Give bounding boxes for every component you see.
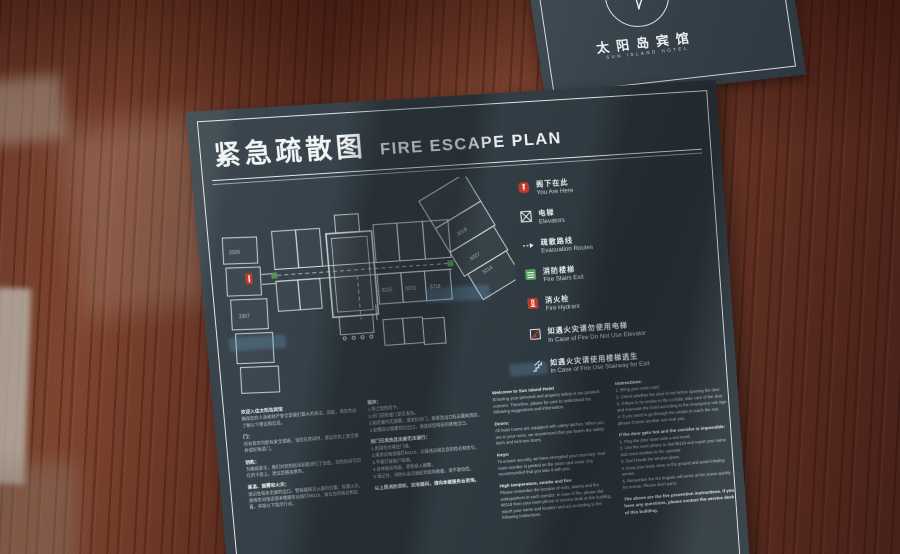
legend-label-en: Fire Stairs Exit [543,274,584,285]
legend-item-stairway-exit: 如遇火灾请使用楼梯逃生 In Case of Fire Use Stairway… [532,346,718,378]
room-label: 3216 [405,286,417,293]
column-footer: The above are the fire prevention instru… [624,487,736,516]
legend: 阁下在此 You Are Here 电梯 Elevators [517,161,718,388]
legend-item-fire-stairs: 消防楼梯 Fire Stairs Exit [524,255,710,286]
evacuation-route-icon [522,239,534,251]
legend-label-en: You Are Here [536,187,573,198]
floor-plan: 3305 3307 3215 3216 3218 3213 3219 3227 [209,174,523,405]
legend-item-evacuation-routes: 疏散路线 Evacuation Routes [522,226,709,257]
fire-stairs-icon [524,268,536,280]
legend-item-elevators: 电梯 Elevators [520,198,707,229]
legend-label-en: Elevators [539,217,565,227]
room-label: 3305 [229,250,241,257]
elevator-icon [520,210,532,222]
no-elevator-icon [529,329,541,341]
fire-hydrant-icon [527,297,539,309]
room-label: 3215 [381,287,393,294]
instructions-column-en: Instructions: 1. Bring your room card. 2… [615,372,742,554]
wall-corner-patch [0,462,78,554]
exit-mark [271,272,278,278]
legend-item-you-are-here: 阁下在此 You Are Here [518,169,705,199]
title-en: FIRE ESCAPE PLAN [379,128,562,162]
info-column-en: Welcome to Sun Island Hotel Ensuring you… [492,381,621,554]
instructions-column-zh: 指示： 1.带上您的房卡。 2.开门前检查门是否发热。 3.如走廊内无烟雾，请关… [367,390,499,554]
sign-title: 紧急疏散图 FIRE ESCAPE PLAN [212,104,705,173]
exit-mark [447,260,453,266]
legend-item-no-elevator: 如遇火灾请勿使用电梯 In Case of Fire Do Not Use El… [529,315,715,347]
title-zh: 紧急疏散图 [212,125,368,173]
legend-label-en: Fire Hydrant [545,303,580,314]
info-column-zh: 欢迎入住太阳岛宾馆 确保您的人身和财产安全是我们最大的关注，因此，请您务必了解以… [241,400,376,554]
fire-escape-sign: 紧急疏散图 FIRE ESCAPE PLAN [186,80,752,554]
you-are-here-marker [245,273,253,284]
room-label: 3307 [239,313,251,320]
you-are-here-icon [518,181,530,193]
photo-scene: 太阳岛宾馆 SUN ISLAND HOTEL 紧急疏散图 FIRE ESCAPE… [0,0,900,554]
legend-item-fire-hydrant: 消火栓 Fire Hydrant [527,284,713,315]
